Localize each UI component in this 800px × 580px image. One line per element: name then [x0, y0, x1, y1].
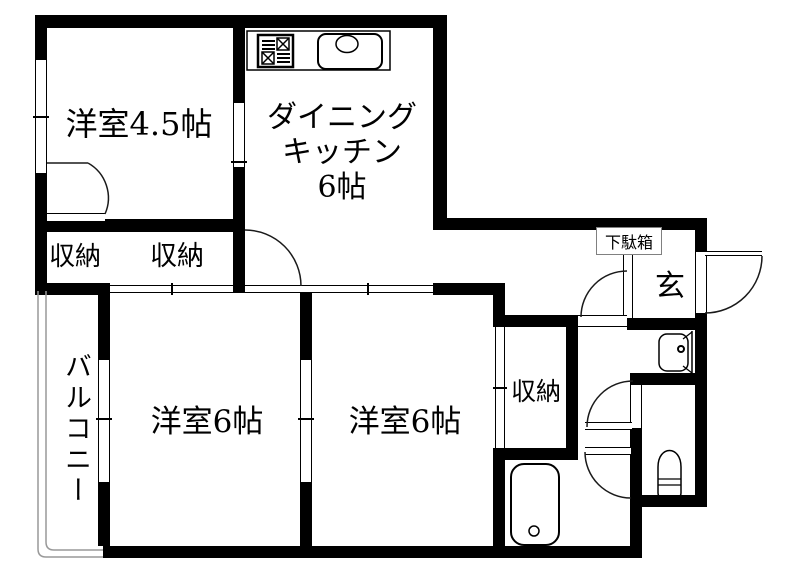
toilet-icon: [658, 451, 681, 498]
dk-label-line3: 6帖: [250, 170, 434, 205]
washbasin-icon: [659, 331, 692, 374]
kitchen-sink-icon: [318, 34, 382, 69]
room6-left-label: 洋室6帖: [112, 403, 302, 441]
bath-door-arc: [585, 452, 631, 498]
shoe-cabinet-label: 下駄箱: [605, 229, 653, 253]
closet2-label: 収納: [142, 241, 212, 272]
room-45-label: 洋室4.5帖: [39, 104, 239, 144]
closet3-label: 収納: [501, 377, 571, 406]
dk-label-line1: ダイニング: [250, 100, 434, 135]
room6-right-label: 洋室6帖: [310, 403, 500, 441]
entrance-label: 玄: [650, 270, 690, 304]
bathtub-icon: [511, 464, 559, 545]
dk-door-arc: [245, 230, 301, 286]
closet1-label: 収納: [40, 242, 110, 272]
dk-label-line2: キッチン: [250, 135, 434, 170]
entry-door-arc: [705, 256, 762, 313]
shoe-cabinet: 下駄箱: [596, 227, 662, 255]
washroom-door-arc: [581, 271, 627, 317]
gas-stove-icon: [258, 35, 293, 67]
floorplan: 下駄箱 洋室4.5帖 ダイニング キッチン 6帖 収納 収納 収納 洋室6帖 洋…: [0, 0, 800, 580]
toilet-door-arc: [587, 381, 633, 427]
closet1-door-arc: [47, 163, 108, 214]
dk-label: ダイニング キッチン 6帖: [250, 100, 434, 205]
balcony-label: バルコニー: [56, 352, 95, 552]
